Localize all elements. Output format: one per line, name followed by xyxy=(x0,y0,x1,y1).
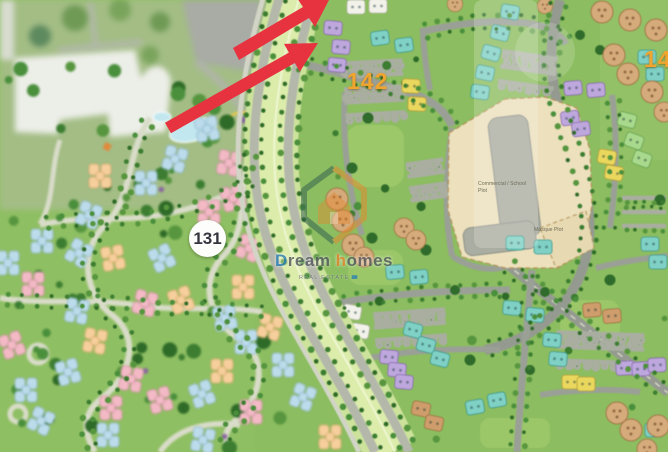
site-plan-drawing xyxy=(0,0,668,452)
master-plan-image: 142 14 131 Commercial / School Plot Mosq… xyxy=(0,0,668,452)
parking-rows xyxy=(342,60,406,123)
